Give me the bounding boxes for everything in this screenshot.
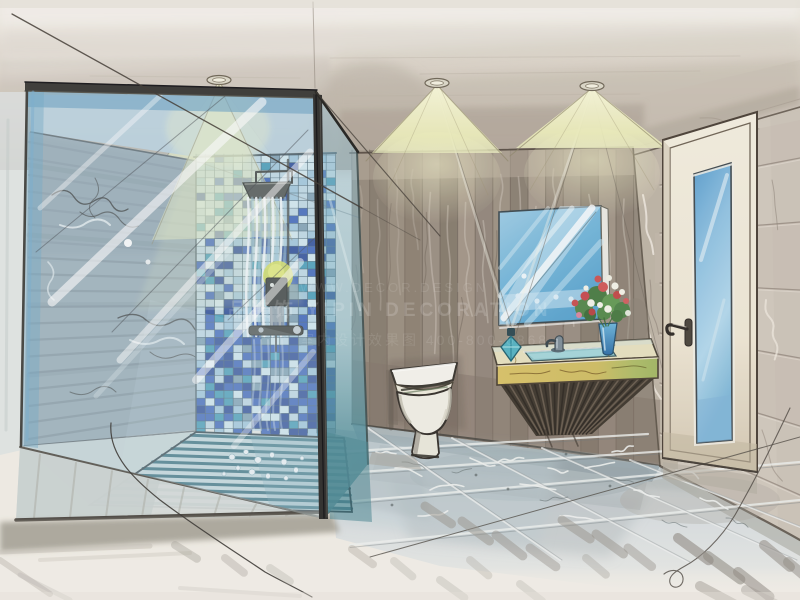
svg-text:一品装饰 YIPIN DECORATION: 一品装饰 YIPIN DECORATION (205, 298, 552, 321)
svg-text:WWW.DECOR.DESIGN: WWW.DECOR.DESIGN (300, 280, 488, 295)
svg-text:室内设计效果图 400-800-6868: 室内设计效果图 400-800-6868 (300, 332, 549, 348)
